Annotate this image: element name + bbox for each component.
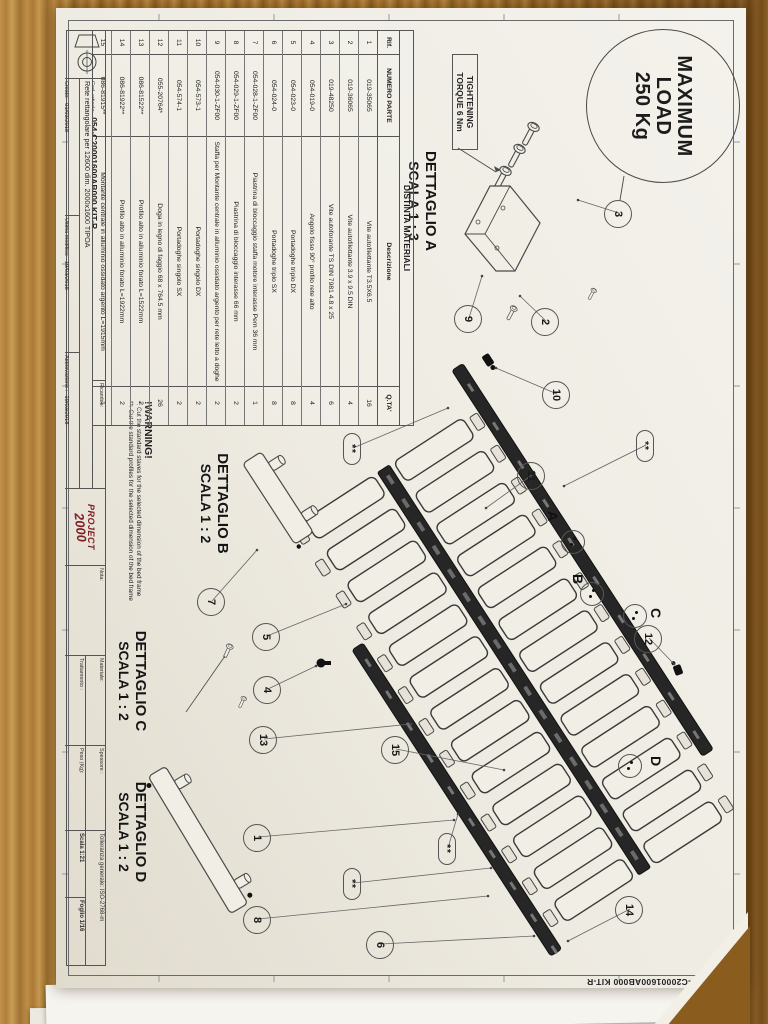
bom-cell: 054-574-1 [169,55,187,137]
detail-b-label: DETTAGLIO B SCALA 1 : 2 [198,426,230,581]
warning-note-2: **: Cut the standard profiles for the se… [127,401,135,601]
maximum-load-badge: MAXIMUM LOAD 250 Kg [586,29,740,183]
bom-row: 6054-024-0Portadoghe triplo SX8 [263,31,282,425]
materiale-label: Materiale: [98,658,104,743]
logo-line2: 2000 [74,512,88,542]
nota-cell: Nota: [65,566,105,656]
bom-header-part: NUMERO PARTE [378,55,399,137]
creato-label: Creato: [65,81,69,99]
part-balloon-2: 2 [531,308,559,336]
cut-note-balloon: ** [343,868,361,900]
modifica-date: 19/03/2018 [65,261,69,290]
materiale-cell: Materiale: [85,656,105,746]
bom-cell: 16 [359,387,377,419]
approvazione-label: Approvazione : [65,355,69,391]
bom-title: DISTINTA MATERIALI [399,31,413,425]
peso-label: Peso (Kg): [78,748,84,828]
foglio-value: Foglio 1/16 [78,900,84,963]
bom-cell: Portadoghe triplo SX [264,137,282,387]
detail-letter-D: D [648,756,664,766]
bom-cell: Profilo alto in alluminio forato L=1522m… [131,137,149,387]
detail-d-label: DETTAGLIO D SCALA 1 : 2 [116,756,148,908]
bom-cell: Vite autofilettante 3.9 x 9.5 DIN [340,137,358,387]
detail-zoom-circle-C [623,604,647,628]
bom-cell: 2 [207,387,225,419]
trattamento-label: Trattamento : [78,658,84,743]
bom-row: 10054-573-1Portadoghe singolo DX2 [187,31,206,425]
part-balloon-9: 9 [454,305,482,333]
bom-cell: 12 [150,31,168,55]
bom-cell: 8 [226,31,244,55]
torque-line1: TIGHTENING [465,56,475,148]
first-angle-projection-icon [69,31,105,75]
bom-cell: 019-48250 [321,55,339,137]
detail-letter-A: A [545,511,561,521]
part-balloon-3: 3 [604,200,632,228]
bom-cell: Angolo fisso 90° profilo rete alto [302,137,320,387]
max-load-line2: LOAD [653,77,674,136]
part-balloon-7: 7 [197,588,225,616]
bom-cell: 4 [302,387,320,419]
bom-cell: 054-024-0 [264,55,282,137]
title-block: Cod. articolo: 054-C20001600AB000 KIT-R … [66,30,106,966]
bom-cell: 1 [245,387,263,419]
part-balloon-11: 11 [517,462,545,490]
max-load-line3: 250 Kg [632,72,653,141]
detail-a-title: DETTAGLIO A [422,126,438,276]
bom-cell: Piastrina di bloccaggio interasse 66 mm [226,137,244,387]
part-balloon-5: 5 [252,623,280,651]
bom-cell: 019-36065 [340,55,358,137]
bom-cell: Portadoghe triplo DX [283,137,301,387]
bom-cell: Portadoghe singolo SX [169,137,187,387]
bom-cell: 26 [150,387,168,419]
tightening-torque-note: TIGHTENING TORQUE 6 Nm [452,54,478,150]
warning-title: !WARNING! [142,401,154,601]
bom-header-row: Rif. NUMERO PARTE Descrizione Q.TA' [377,31,399,425]
ricambio-label: Ricambio: [98,383,104,486]
part-balloon-13: 13 [249,726,277,754]
bom-cell: 086-81922** [112,55,130,137]
bom-row: 2019-36065Vite autofilettante 3.9 x 9.5 … [339,31,358,425]
warning-note-1: *: Cut the standard staves for the selec… [134,401,142,601]
max-load-line1: MAXIMUM [674,55,695,156]
cut-note-balloon: ** [438,833,456,865]
bom-row: 14086-81922**Profilo alto in alluminio f… [111,31,130,425]
bom-cell: 054-573-1 [188,55,206,137]
bom-cell: 055-20764* [150,55,168,137]
projection-symbol-cell [65,31,105,79]
part-balloon-14: 14 [615,896,643,924]
bom-cell: 2 [226,387,244,419]
bom-header-rif: Rif. [378,31,399,55]
project2000-logo: PROJECT 2000 [65,489,105,566]
part-balloon-10: 10 [542,381,570,409]
scala-cell: Scala 1:21 [65,831,85,898]
detail-b-scale: SCALA 1 : 2 [198,426,214,581]
bom-cell: 5 [283,31,301,55]
part-balloon-6: 6 [366,931,394,959]
bom-cell: 14 [112,31,130,55]
bom-cell: Profilo alto in alluminio forato L=1922m… [112,137,130,387]
bill-of-materials-table: DISTINTA MATERIALI Rif. NUMERO PARTE Des… [92,30,414,426]
cut-note-balloon: ** [636,430,654,462]
trattamento-cell: Trattamento : [65,656,85,746]
bom-cell: Piastrina di bloccaggio staffa motore in… [245,137,263,387]
spessore-cell: Spessore : [85,746,105,831]
bom-cell: Staffa per Montante centrale in allumini… [207,137,225,387]
page-curl-wood [662,926,750,1024]
bom-cell: 2 [188,387,206,419]
bom-cell: 4 [302,31,320,55]
bom-cell: 054-029-1-ZF00 [226,55,244,137]
bom-cell: 054-019-0 [302,55,320,137]
detail-zoom-circle-A [561,530,585,554]
bom-cell: Doga in legno di faggio 68 x 764.5 mm [150,137,168,387]
bom-row: 5054-023-0Portadoghe triplo DX8 [282,31,301,425]
spessore-label: Spessore : [98,748,104,828]
detail-d-scale: SCALA 1 : 2 [116,756,132,908]
bom-cell: 13 [131,31,149,55]
part-balloon-15: 15 [381,736,409,764]
bom-header-desc: Descrizione [378,137,399,387]
tolleranza-cell: Tolleranza generale: ISO-2768-m [85,831,105,965]
detail-zoom-circle-B [580,582,604,606]
bom-cell: 1 [359,31,377,55]
scala-value: Scala 1:21 [78,833,84,895]
bom-cell: 6 [264,31,282,55]
approvazione-date: 19/03/2018 [65,395,69,424]
bom-cell: 3 [321,31,339,55]
bom-cell: 10 [188,31,206,55]
description-cell: Rete rettangolare per 12600 dim. 2000x16… [79,79,92,489]
bom-cell: 2 [112,387,130,419]
drawing-description: Rete rettangolare per 12600 dim. 2000x16… [83,81,91,486]
cut-note-balloon: ** [343,433,361,465]
ricambio-cell: Ricambio: [92,381,105,489]
drawing-sheet: MAXIMUM LOAD 250 Kg TIGHTENING TORQUE 6 … [56,8,746,988]
bom-header-qty: Q.TA' [378,387,399,419]
detail-c-scale: SCALA 1 : 2 [116,610,132,752]
bom-row: 8054-029-1-ZF00Piastrina di bloccaggio i… [225,31,244,425]
bom-row: 3019-48250Vite autoforante TS DIN 7981 4… [320,31,339,425]
cod-articolo-cell: Cod. articolo: 054-C20001600AB000 KIT-R [92,79,105,381]
bom-row: 12055-20764*Doga in legno di faggio 68 x… [149,31,168,425]
foglio-cell: Foglio 1/16 [65,898,85,965]
bom-cell: 9 [207,31,225,55]
bom-cell: 054-028-1-ZF00 [245,55,263,137]
bom-cell: 11 [169,31,187,55]
approvazione-cell: Approvazione : 19/03/2018 F. Romagnoli [65,353,79,489]
warning-notes: !WARNING! *: Cut the standard staves for… [127,401,154,601]
tolleranza-value: Tolleranza generale: ISO-2768-m [98,833,104,963]
bom-cell: 4 [340,387,358,419]
photo-of-technical-drawing: MAXIMUM LOAD 250 Kg TIGHTENING TORQUE 6 … [0,0,768,1024]
part-balloon-8: 8 [243,906,271,934]
peso-cell: Peso (Kg): [65,746,85,831]
cod-articolo-label: Cod. articolo: [92,81,95,113]
bom-cell: 7 [245,31,263,55]
bom-row: 1019-35065Vite autofilettante T3.5X6.516 [358,31,377,425]
detail-letter-C: C [648,608,664,618]
detail-c-label: DETTAGLIO C SCALA 1 : 2 [116,610,148,752]
bom-row: 9054-030-1-ZF00Staffa per Montante centr… [206,31,225,425]
modifica-label: Ultima modifica: [65,218,69,256]
bom-cell: 019-35065 [359,55,377,137]
torque-line2: TORQUE 6 Nm [455,56,465,148]
bom-row: 11054-574-1Portadoghe singolo SX2 [168,31,187,425]
bom-cell: 2 [131,387,149,419]
modifica-cell: Ultima modifica: 19/03/2018 ADMIN [65,216,79,353]
part-balloon-4: 4 [253,676,281,704]
detail-b-title: DETTAGLIO B [214,426,230,581]
part-balloon-12: 12 [634,625,662,653]
part-balloon-1: 1 [243,824,271,852]
bom-row: 4054-019-0Angolo fisso 90° profilo rete … [301,31,320,425]
creato-date: 01/03/2018 [65,103,69,132]
bom-cell: 054-023-0 [283,55,301,137]
cod-articolo-value: 054-C20001600AB000 KIT-R [92,117,99,229]
detail-letter-B: B [570,574,586,584]
bom-cell: Portadoghe singolo DX [188,137,206,387]
bom-cell: Vite autofilettante T3.5X6.5 [359,137,377,387]
detail-d-title: DETTAGLIO D [132,756,148,908]
bom-cell: Vite autoforante TS DIN 7981 4.8 x 25 [321,137,339,387]
bom-cell: 8 [283,387,301,419]
bom-row: 13086-81522**Profilo alto in alluminio f… [130,31,149,425]
bom-cell: 6 [321,387,339,419]
bom-cell: 8 [264,387,282,419]
bom-rows: 1019-35065Vite autofilettante T3.5X6.516… [93,31,377,425]
detail-c-title: DETTAGLIO C [132,610,148,752]
bom-cell: 2 [340,31,358,55]
nota-label: Nota: [98,568,104,653]
bom-cell: 054-030-1-ZF00 [207,55,225,137]
bom-cell: 2 [169,387,187,419]
bom-cell: 086-81522** [131,55,149,137]
creato-cell: Creato: 01/03/2018 ADMIN [65,79,79,216]
bom-row: 7054-028-1-ZF00Piastrina di bloccaggio s… [244,31,263,425]
detail-zoom-circle-D [618,754,642,778]
